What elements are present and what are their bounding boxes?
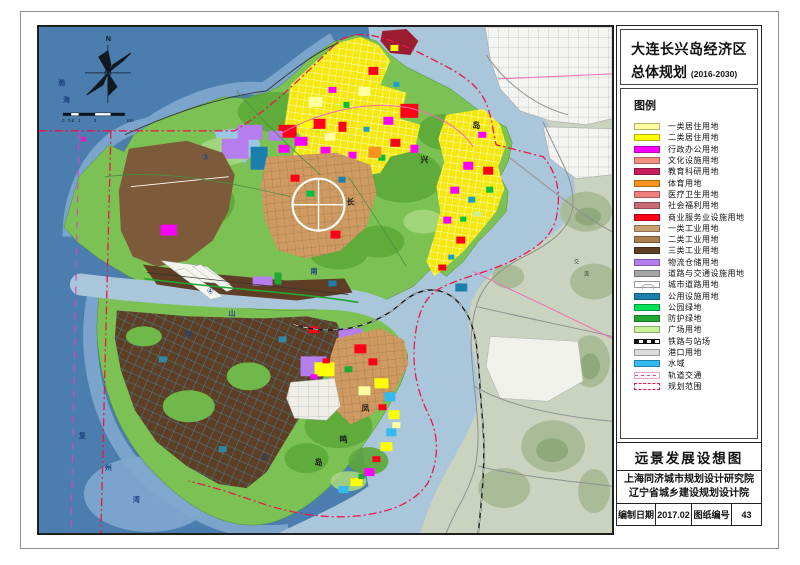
sheet-no-value: 43 [731,504,761,525]
legend-item: 广场用地 [634,324,755,335]
legend-item: 物流仓储用地 [634,257,755,268]
map-canvas: 渤海复州湾南山河长兴岛凤鸣岛交流③④②N00.512Km [37,25,614,535]
legend-item-label: 二类居住用地 [668,132,719,143]
map-label-tiny: 流 [584,271,589,278]
info-panel: 大连长兴岛经济区 总体规划 (2016-2030) 图例 一类居住用地二类居住用… [616,25,762,526]
legend-title: 图例 [634,97,755,113]
legend-item: 文化设施用地 [634,155,755,166]
legend-item: 防护绿地 [634,313,755,324]
legend-item-label: 商业服务业设施用地 [668,212,745,223]
map-label-marker: ② [261,453,268,462]
legend-item: 行政办公用地 [634,144,755,155]
legend-item-label: 一类居住用地 [668,121,719,132]
legend-item: 规划范围 [634,381,755,392]
plan-sheet: 渤海复州湾南山河长兴岛凤鸣岛交流③④②N00.512Km 大连长兴岛经济区 总体… [0,0,800,565]
map-label-tiny: 交 [574,259,579,266]
map-label-land: 岛 [315,457,323,467]
institute-secondary: 辽宁省城乡建设规划设计院 [617,487,761,501]
legend-item: 二类工业用地 [634,234,755,245]
date-value: 2017.02 [655,504,691,525]
legend-item: 体育用地 [634,177,755,188]
scale-bar [63,113,125,116]
legend-item: 商业服务业设施用地 [634,211,755,222]
legend-items: 一类居住用地二类居住用地行政办公用地文化设施用地教育科研用地体育用地医疗卫生用地… [634,121,755,392]
legend-item-label: 公园绿地 [668,302,702,313]
legend-swatch-boundary [634,383,660,390]
legend-item-label: 防护绿地 [668,313,702,324]
plan-period: (2016-2030) [691,69,737,79]
map-label-sea: 南 [311,267,318,276]
map-label-land: 岛 [472,120,480,130]
legend-item: 港口用地 [634,347,755,358]
map-label-sea: 山 [229,308,236,317]
legend-item-label: 文化设施用地 [668,155,719,166]
legend-item: 道路与交通设施用地 [634,268,755,279]
map-label-land: 兴 [420,155,428,165]
legend-item: 轨道交通 [634,370,755,381]
legend-item: 二类居住用地 [634,132,755,143]
plan-title-line2: 总体规划 (2016-2030) [631,62,753,82]
legend-item-label: 轨道交通 [668,370,702,381]
legend-swatch-color [634,270,660,277]
map-label-marker: ③ [202,153,209,162]
institute-primary: 上海同济城市规划设计研究院 [617,473,761,487]
legend-swatch-color [634,157,660,164]
legend-swatch-color [634,168,660,175]
legend-item-label: 港口用地 [668,347,702,358]
map-label-scale: Km [127,118,134,123]
legend-swatch-color [634,293,660,300]
map-label-land: 凤 [361,404,369,413]
legend-item: 一类工业用地 [634,223,755,234]
legend-swatch-color [634,180,660,187]
legend-item: 水域 [634,358,755,369]
legend-swatch-color [634,349,660,356]
sheet-no-label: 图纸编号 [691,504,731,525]
map-label-land: 长 [346,197,354,207]
legend-item: 铁路与站场 [634,336,755,347]
legend-swatch-color [634,360,660,367]
legend-swatch-color [634,259,660,266]
sheet-subtitle: 远景发展设想图 [617,442,761,470]
legend-item-label: 三类工业用地 [668,245,719,256]
legend-item-label: 城市道路用地 [668,279,719,290]
legend-swatch-color [634,146,660,153]
map-label-sea: 复 [78,431,87,440]
date-label: 编制日期 [617,504,655,525]
legend-swatch-color [634,247,660,254]
title-block: 大连长兴岛经济区 总体规划 (2016-2030) [620,29,758,85]
legend-item: 公用设施用地 [634,290,755,301]
map-label-compass: N [106,36,111,43]
legend-swatch-color [634,202,660,209]
map-label-sea: 海 [63,95,70,104]
map-label-land: 鸣 [339,434,347,444]
sheet-meta: 编制日期 2017.02 图纸编号 43 [617,503,761,525]
legend-item-label: 医疗卫生用地 [668,189,719,200]
legend-item: 三类工业用地 [634,245,755,256]
map-label-sea: 湾 [133,495,140,504]
institutes-block: 上海同济城市规划设计研究院 辽宁省城乡建设规划设计院 [617,470,761,503]
legend-swatch-color [634,236,660,243]
legend-item: 一类居住用地 [634,121,755,132]
map-label-marker: ④ [207,286,214,295]
legend-swatch-color [634,326,660,333]
legend-block: 图例 一类居住用地二类居住用地行政办公用地文化设施用地教育科研用地体育用地医疗卫… [620,88,758,439]
map-label-sea: 河 [185,329,192,338]
legend-item: 公园绿地 [634,302,755,313]
legend-item-label: 公用设施用地 [668,291,719,302]
map-label-sea: 州 [104,464,112,472]
legend-swatch-color [634,191,660,198]
legend-swatch-color [634,225,660,232]
legend-item-label: 体育用地 [668,178,702,189]
map-label-sea: 渤 [58,78,65,87]
legend-swatch-color [634,304,660,311]
legend-item-label: 规划范围 [668,381,702,392]
legend-item-label: 道路与交通设施用地 [668,268,745,279]
legend-item-label: 铁路与站场 [668,336,711,347]
legend-item-label: 水域 [668,358,685,369]
plan-title-line1: 大连长兴岛经济区 [631,39,753,59]
legend-swatch-color [634,123,660,130]
legend-item: 教育科研用地 [634,166,755,177]
land-use-map-svg: 渤海复州湾南山河长兴岛凤鸣岛交流③④②N00.512Km [39,27,612,533]
legend-swatch-road [634,281,660,288]
legend-item-label: 教育科研用地 [668,166,719,177]
legend-item-label: 社会福利用地 [668,200,719,211]
transit-node [81,137,86,142]
legend-swatch-rail [634,339,660,344]
legend-swatch-transit [634,372,660,379]
legend-item: 医疗卫生用地 [634,189,755,200]
legend-item-label: 一类工业用地 [668,223,719,234]
legend-swatch-color [634,134,660,141]
legend-item-label: 二类工业用地 [668,234,719,245]
legend-swatch-color [634,315,660,322]
legend-item-label: 广场用地 [668,324,702,335]
legend-item-label: 物流仓储用地 [668,257,719,268]
legend-item-label: 行政办公用地 [668,144,719,155]
legend-item: 城市道路用地 [634,279,755,290]
map-label-scale: 0.5 [68,118,75,123]
legend-swatch-color [634,214,660,221]
legend-item: 社会福利用地 [634,200,755,211]
